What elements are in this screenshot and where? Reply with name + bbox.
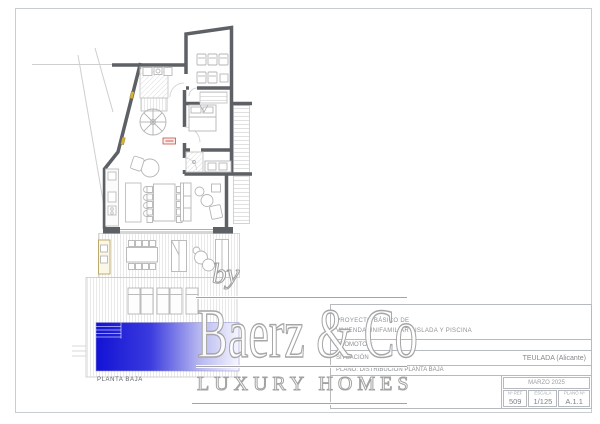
living-room bbox=[181, 183, 223, 221]
sheet-no-cell: PLANO Nº A.1.1 bbox=[558, 390, 590, 407]
entry-utility-room bbox=[140, 67, 172, 98]
scale-value: 1/125 bbox=[534, 397, 553, 406]
sheet-no-value: A.1.1 bbox=[565, 397, 583, 406]
site-boundary-lines bbox=[32, 48, 113, 218]
coffee-table bbox=[201, 195, 213, 207]
outdoor-table bbox=[127, 248, 158, 263]
side-table bbox=[212, 184, 221, 192]
kitchen-island bbox=[126, 183, 142, 222]
media-room-seating bbox=[197, 54, 228, 83]
side-steps bbox=[234, 106, 250, 224]
watermark-by: by bbox=[212, 258, 239, 291]
dining-table bbox=[147, 184, 182, 223]
scale-cell: ESCALA 1/125 bbox=[528, 390, 557, 407]
floor-label: PLANTA BAJA bbox=[97, 377, 143, 383]
drawing-sheet: PLANTA BAJA PROYECTO BÁSICO DE VIVIENDA … bbox=[0, 0, 600, 424]
wardrobe bbox=[200, 92, 227, 103]
meta-area: MARZO 2025 Nº REF 509 ESCALA 1/125 PLANO… bbox=[502, 376, 591, 408]
pillars bbox=[103, 227, 233, 234]
sheet-no-label: PLANO Nº bbox=[564, 392, 585, 396]
location-value: TEULADA (Alicante) bbox=[523, 355, 586, 362]
watermark-rule bbox=[192, 403, 407, 404]
shower bbox=[186, 152, 203, 172]
watermark-brand: Baerz & Co bbox=[197, 303, 418, 367]
scale-label: ESCALA bbox=[534, 392, 551, 396]
watermark-rule bbox=[196, 366, 407, 367]
armchair bbox=[209, 204, 222, 219]
watermark-tagline: LUXURY HOMES bbox=[197, 373, 414, 396]
ref-value: 509 bbox=[509, 397, 522, 406]
sofa bbox=[181, 183, 192, 221]
ref-cell: Nº REF 509 bbox=[503, 390, 527, 407]
sun-loungers bbox=[128, 288, 198, 314]
level-marker bbox=[163, 138, 176, 144]
bathroom bbox=[186, 152, 231, 172]
sink bbox=[108, 192, 116, 202]
sliding-glass-doors bbox=[120, 230, 213, 233]
date-cell: MARZO 2025 bbox=[503, 377, 590, 389]
kitchen bbox=[106, 169, 150, 226]
coffee-table bbox=[195, 187, 204, 196]
sitting-nook bbox=[130, 156, 159, 177]
spiral-staircase bbox=[140, 98, 167, 135]
bedroom bbox=[189, 92, 227, 131]
ref-label: Nº REF bbox=[508, 392, 523, 396]
